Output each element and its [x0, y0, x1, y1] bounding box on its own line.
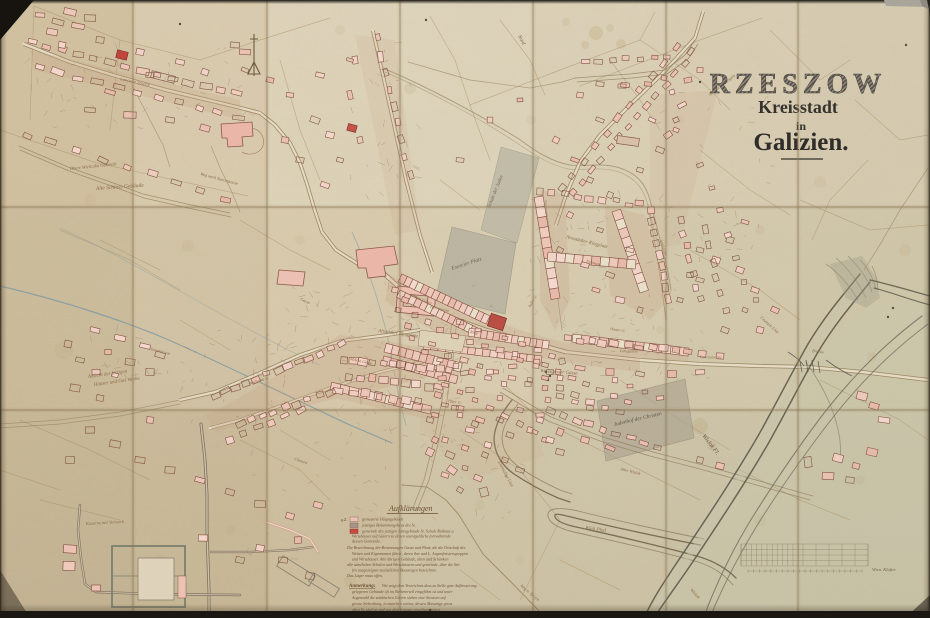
svg-text:Das Lager muss offen.: Das Lager muss offen. — [346, 573, 383, 578]
svg-text:Wie zeigt dem Verzeichnis dass: Wie zeigt dem Verzeichnis dass zu Stelle… — [382, 583, 477, 588]
svg-text:jetztiges Bekanntungshaus des: jetztiges Bekanntungshaus des St. — [361, 523, 416, 528]
svg-text:fen ausgezeigten zusätzlichen: fen ausgezeigten zusätzlichen Bausteigen… — [352, 568, 437, 573]
svg-text:Wien. Klafter: Wien. Klafter — [872, 567, 896, 572]
svg-text:Aufklärungen: Aufklärungen — [388, 504, 433, 513]
svg-text:Lanczuter Str.: Lanczuter Str. — [699, 354, 722, 360]
svg-text:g.Z.: g.Z. — [341, 517, 347, 522]
svg-text:dessen Gemeinde.: dessen Gemeinde. — [352, 539, 381, 544]
svg-text:Langgasse: Langgasse — [619, 348, 638, 354]
